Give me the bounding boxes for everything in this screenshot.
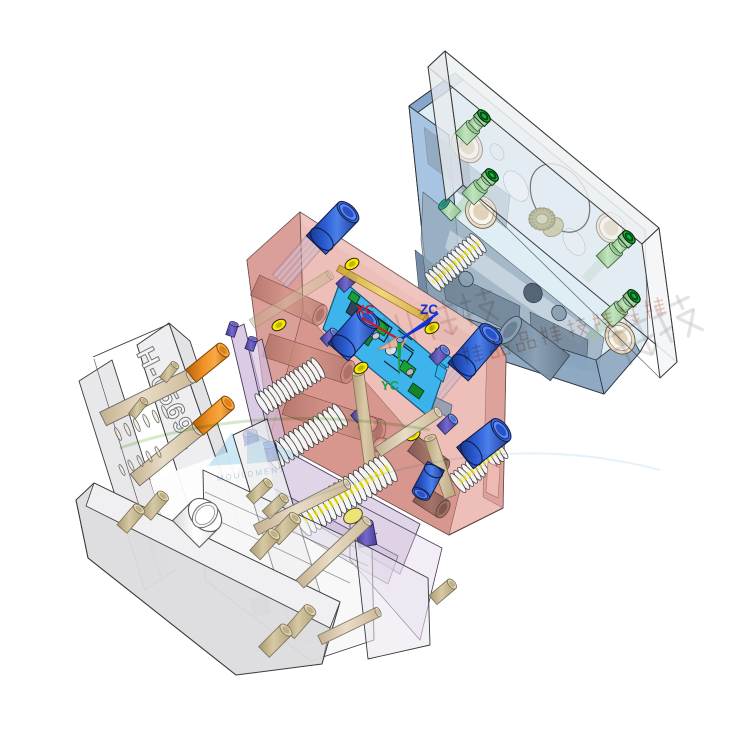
svg-text:XC: XC: [356, 302, 375, 317]
svg-text:YC: YC: [381, 378, 400, 393]
